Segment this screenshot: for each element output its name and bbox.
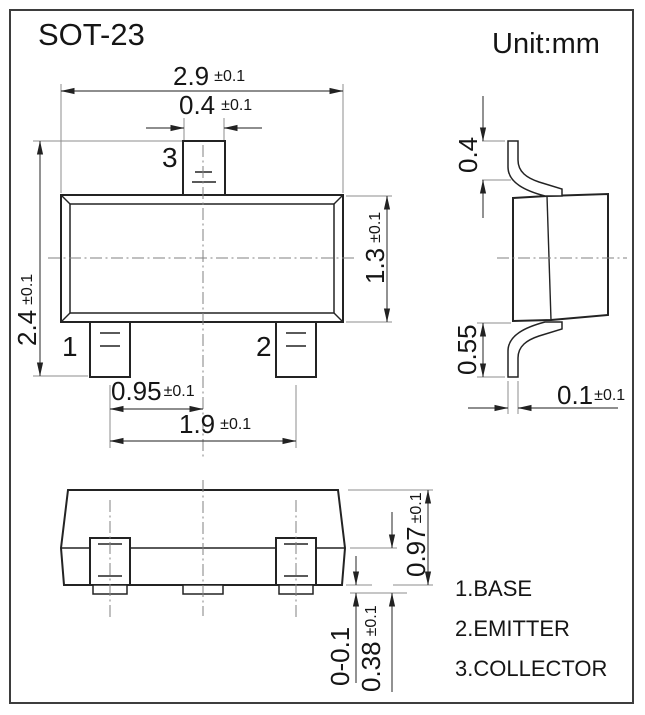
dim-body-height: 0.97±0.1 xyxy=(348,490,433,585)
pin-1-lead xyxy=(90,322,130,377)
dim-lead-span: 1.9±0.1 xyxy=(110,409,296,441)
legend-item-collector: 3.COLLECTOR xyxy=(455,656,607,681)
dimension-label: 2.4±0.1 xyxy=(12,274,42,346)
pin-3-lead xyxy=(183,141,225,196)
top-gullwing-lead xyxy=(508,141,562,196)
drawing-sheet: SOT-23 Unit:mm 3 1 xyxy=(0,0,645,715)
unit-label: Unit:mm xyxy=(492,28,600,60)
dimension-label: 1.3±0.1 xyxy=(360,212,390,284)
dim-top-lead-height: 0.4 xyxy=(453,96,511,218)
pin-3-number: 3 xyxy=(162,142,178,173)
dimension-label: 0.1±0.1 xyxy=(557,380,625,410)
dimension-label: 0.95±0.1 xyxy=(111,376,195,406)
front-view: 0.97±0.1 0.38±0.1 0-0.1 xyxy=(61,480,433,692)
pin-2-lead xyxy=(276,322,316,377)
dimension-label: 1.9±0.1 xyxy=(179,409,251,439)
pin-legend: 1.BASE 2.EMITTER 3.COLLECTOR xyxy=(455,576,607,681)
bottom-gullwing-lead xyxy=(508,322,562,377)
dimension-label: 0.97±0.1 xyxy=(401,492,431,577)
dimension-label: 0-0.1 xyxy=(325,627,355,686)
pin-1-number: 1 xyxy=(62,331,78,362)
legend-item-emitter: 2.EMITTER xyxy=(455,616,570,641)
page-title: SOT-23 xyxy=(38,17,145,52)
dimension-label: 0.4 xyxy=(453,137,483,173)
package-drawing: SOT-23 Unit:mm 3 1 xyxy=(0,0,645,715)
dimension-label: 0.4±0.1 xyxy=(179,90,252,120)
side-view: 0.4 0.55 0.1±0.1 xyxy=(452,96,627,414)
dimension-label: 2.9±0.1 xyxy=(173,61,245,91)
dim-lead-thickness: 0.1±0.1 xyxy=(468,380,625,414)
dimension-label: 0.55 xyxy=(452,324,482,375)
dim-body-depth: 1.3±0.1 xyxy=(346,196,392,322)
dimension-label: 0.38±0.1 xyxy=(356,605,386,692)
legend-item-base: 1.BASE xyxy=(455,576,532,601)
dim-lead-foot-height: 0.38±0.1 xyxy=(350,512,407,692)
dim-bottom-lead-height: 0.55 xyxy=(452,323,511,377)
dim-lead-width: 0.4±0.1 xyxy=(146,90,262,140)
top-view: 3 1 2 2.9±0.1 0.4±0.1 xyxy=(12,61,392,458)
pin-2-number: 2 xyxy=(256,331,272,362)
